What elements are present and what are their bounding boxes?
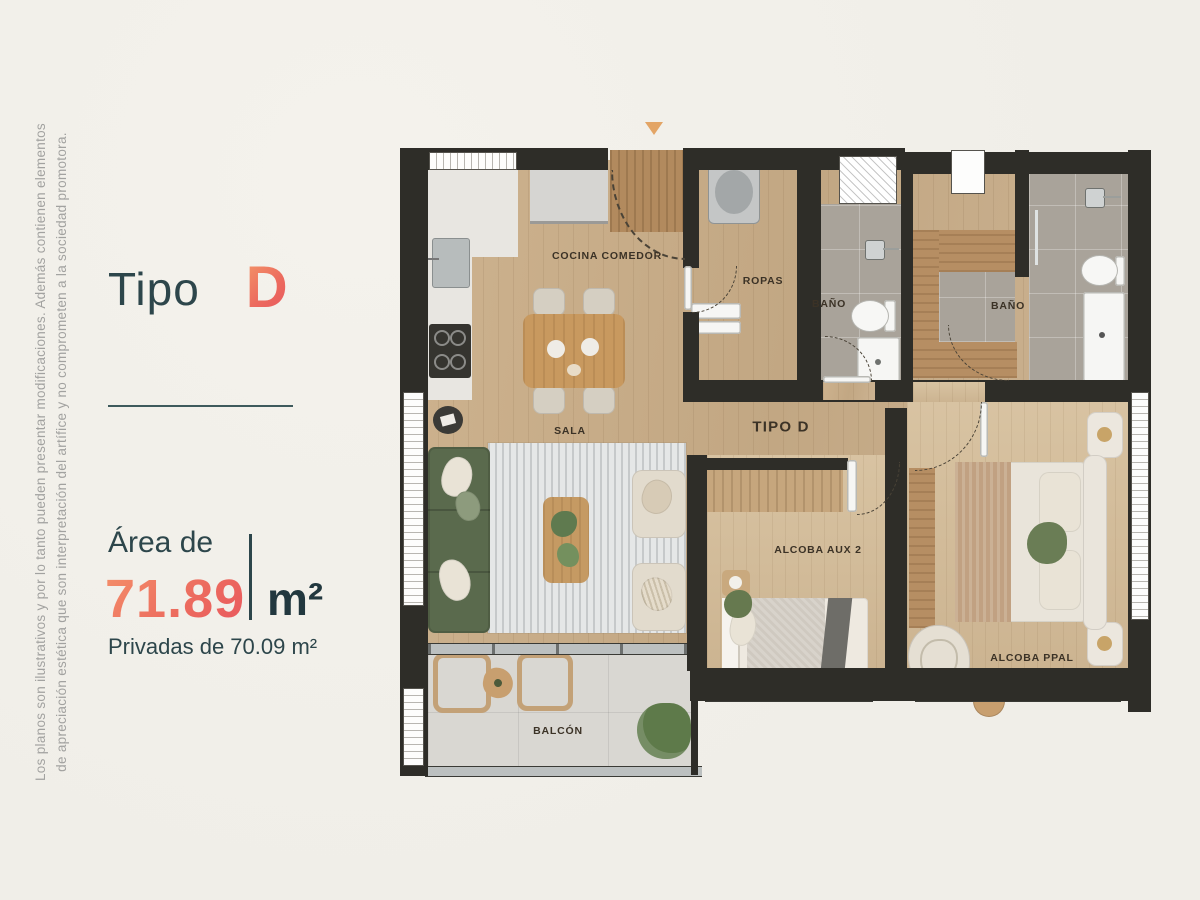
side-table <box>433 406 463 434</box>
wall-bano1-closet <box>901 162 913 384</box>
nightstand-ppal <box>1087 412 1123 458</box>
alcoba-ppal-window <box>1131 392 1149 620</box>
dining-chair <box>583 288 615 316</box>
wall-bano2-left <box>1015 150 1029 277</box>
shower-arm <box>1103 196 1121 198</box>
room-label-sala: SALA <box>554 425 586 437</box>
wall-bottom <box>690 668 1150 701</box>
toilet-bowl <box>851 300 889 332</box>
wall-cocina-ropas-upper <box>683 148 699 268</box>
bed-ppal <box>955 462 1085 622</box>
kitchen-stove <box>429 324 471 378</box>
duct-shaft <box>839 156 897 204</box>
room-label-bano-2: BAÑO <box>991 300 1025 312</box>
armchair <box>632 563 686 631</box>
balcony-window <box>403 688 424 766</box>
disclaimer-line-1: Los planos son ilustrativos y por lo tan… <box>30 66 51 838</box>
area-value: 71.89 <box>105 568 245 630</box>
title-letter: D <box>246 254 288 321</box>
kitchen-sink <box>432 238 470 288</box>
room-label-cocina-comedor: COCINA COMEDOR <box>552 250 662 262</box>
area-unit: m² <box>267 572 323 626</box>
room-label-balcon: BALCÓN <box>533 725 583 737</box>
room-label-bano-1: BAÑO <box>812 298 846 310</box>
plant <box>1027 522 1067 564</box>
title-prefix: Tipo <box>108 262 200 316</box>
dining-chair <box>583 386 615 414</box>
wall-aux-ppal <box>885 408 907 668</box>
sala-window <box>403 392 424 606</box>
headboard-ppal <box>1083 455 1107 630</box>
area-label: Área de <box>108 526 213 560</box>
washing-machine <box>708 162 760 224</box>
door-leaf-ropas <box>684 266 692 310</box>
kitchen-fridge-cabinet <box>530 163 608 224</box>
disclaimer-vertical-text: Los planos son ilustrativos y por lo tan… <box>30 66 72 838</box>
floor-plan: COCINA COMEDOR ROPAS BAÑO BAÑO SALA TIPO… <box>395 140 1157 792</box>
wall-aux-top <box>688 458 848 470</box>
glass-shelf <box>1035 210 1038 265</box>
bath-vanity <box>1083 292 1125 382</box>
plant <box>724 590 752 618</box>
shower-head-icon <box>865 240 885 260</box>
dining-table <box>523 314 625 388</box>
balcony-plant <box>637 703 691 759</box>
area-divider-line <box>249 534 252 620</box>
door-leaf-aux <box>847 460 857 512</box>
room-label-alcoba-ppal: ALCOBA PPAL <box>990 652 1073 664</box>
balcony-railing <box>425 766 702 777</box>
door-gap-bano1 <box>823 382 875 400</box>
title-divider-line <box>108 405 293 407</box>
balcony-chair <box>517 653 573 711</box>
armchair <box>632 470 686 538</box>
wall-hall-horizontal <box>683 380 1129 402</box>
flyer-page: Los planos son ilustrativos y por lo tan… <box>0 0 1200 900</box>
room-label-tipo-d: TIPO D <box>752 419 809 436</box>
wardrobe-aux <box>695 470 843 512</box>
shower-arm <box>883 248 899 250</box>
sofa <box>428 447 490 633</box>
door-gap-ppal <box>913 382 985 402</box>
shower-head-icon <box>1085 188 1105 208</box>
room-label-ropas: ROPAS <box>743 275 784 287</box>
entry-marker-icon <box>645 122 663 135</box>
private-area-text: Privadas de 70.09 m² <box>108 634 317 660</box>
plan-title: Tipo D <box>108 262 288 321</box>
disclaimer-line-2: de apreciación estética que son interpre… <box>51 66 72 838</box>
wall-ropas-bano1 <box>797 162 821 384</box>
dining-chair <box>533 288 565 316</box>
sliding-glass-door <box>428 643 688 655</box>
dining-chair <box>533 386 565 414</box>
wall-sala-aux <box>687 455 707 671</box>
wall-cocina-ropas-lower <box>683 312 699 382</box>
duct-shaft-small <box>951 150 985 194</box>
kitchen-window <box>429 152 517 170</box>
coffee-table <box>543 497 589 583</box>
toilet-bowl <box>1081 255 1118 286</box>
room-label-alcoba-aux-2: ALCOBA AUX 2 <box>774 544 862 556</box>
closet-ppal <box>909 468 935 628</box>
